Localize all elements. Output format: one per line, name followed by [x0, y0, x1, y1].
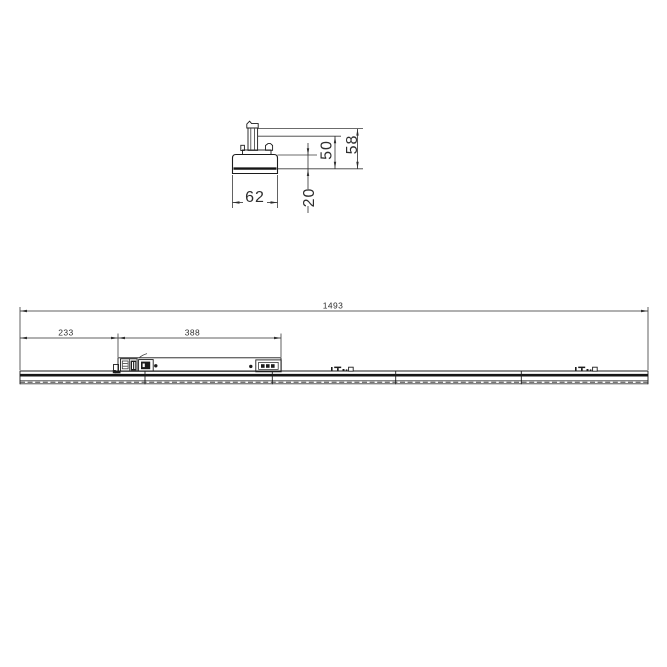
- section-adapter: [241, 144, 273, 155]
- dim-overall-length-label: 1493: [323, 301, 344, 311]
- gear-tray: [113, 354, 281, 374]
- section-stem: [247, 121, 258, 150]
- screw-dot-left: [154, 364, 157, 367]
- wire-leader: [139, 354, 147, 358]
- technical-drawing-page: 62 20 50 58: [0, 0, 667, 667]
- suspension-clip-right: [575, 367, 597, 372]
- dim-body-height-label: 20: [301, 188, 318, 208]
- dim-left-offset-label: 233: [58, 328, 73, 338]
- dim-adapter-height: 50: [319, 136, 337, 169]
- dim-total-height: 58: [344, 129, 361, 169]
- suspension-clip-left: [331, 367, 353, 372]
- terminal-block: [249, 360, 281, 372]
- dim-total-height-label: 58: [344, 135, 361, 155]
- side-view: 1493 233 388: [20, 301, 648, 385]
- dim-width: 62: [233, 189, 278, 206]
- stem-cap: [247, 121, 258, 128]
- dim-offsets: 233 388: [20, 328, 281, 358]
- driver-component: [139, 360, 154, 371]
- dim-gear-tray-length-label: 388: [185, 328, 200, 338]
- connector-block: [121, 359, 138, 371]
- screw-dot-right: [249, 365, 252, 368]
- dim-adapter-height-label: 50: [319, 140, 336, 160]
- section-body: [233, 155, 278, 174]
- dim-overall-length: 1493: [20, 301, 648, 371]
- dim-width-label: 62: [245, 189, 265, 206]
- section-view: 62 20 50 58: [233, 121, 364, 213]
- dim-body-height: 20: [301, 143, 318, 213]
- technical-drawing: 62 20 50 58: [0, 0, 667, 667]
- end-bracket: [113, 365, 121, 374]
